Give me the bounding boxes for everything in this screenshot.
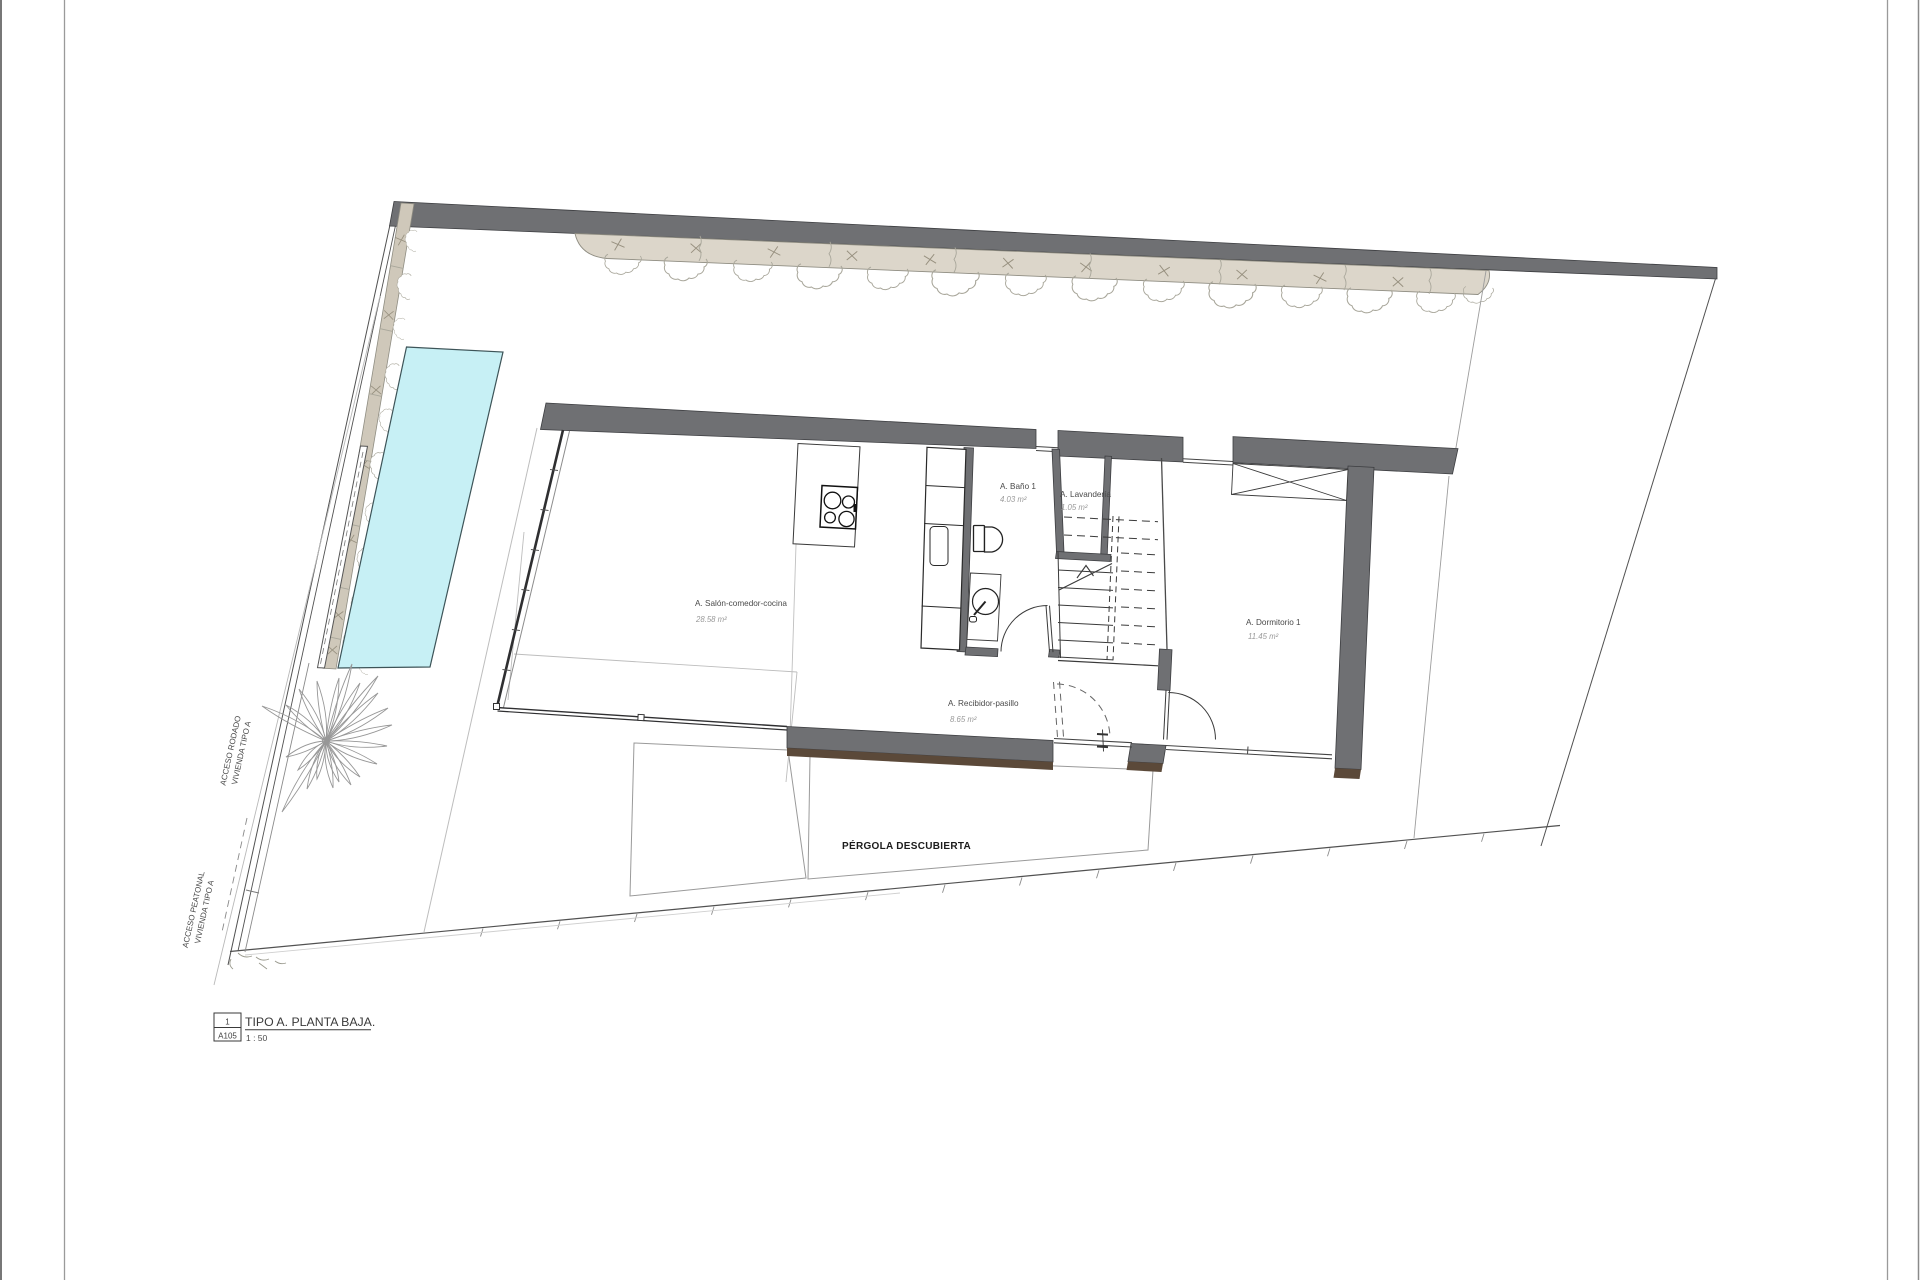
svg-text:A. Lavandería: A. Lavandería xyxy=(1060,490,1111,499)
svg-text:A. Recibidor-pasillo: A. Recibidor-pasillo xyxy=(948,699,1019,708)
svg-text:1: 1 xyxy=(225,1018,230,1027)
svg-text:PÉRGOLA DESCUBIERTA: PÉRGOLA DESCUBIERTA xyxy=(842,839,971,852)
svg-text:1 : 50: 1 : 50 xyxy=(246,1033,268,1043)
svg-text:A. Dormitorio 1: A. Dormitorio 1 xyxy=(1246,618,1301,627)
svg-text:8.65 m²: 8.65 m² xyxy=(950,715,977,724)
svg-text:TIPO A. PLANTA BAJA.: TIPO A. PLANTA BAJA. xyxy=(245,1015,375,1029)
svg-text:A105: A105 xyxy=(218,1032,237,1041)
svg-text:1.05 m²: 1.05 m² xyxy=(1061,503,1088,512)
svg-text:28.58 m²: 28.58 m² xyxy=(695,615,727,624)
svg-text:4.03 m²: 4.03 m² xyxy=(1000,495,1027,504)
svg-text:A. Baño 1: A. Baño 1 xyxy=(1000,482,1036,491)
svg-text:A. Salón-comedor-cocina: A. Salón-comedor-cocina xyxy=(695,599,787,608)
svg-text:11.45 m²: 11.45 m² xyxy=(1248,632,1279,641)
